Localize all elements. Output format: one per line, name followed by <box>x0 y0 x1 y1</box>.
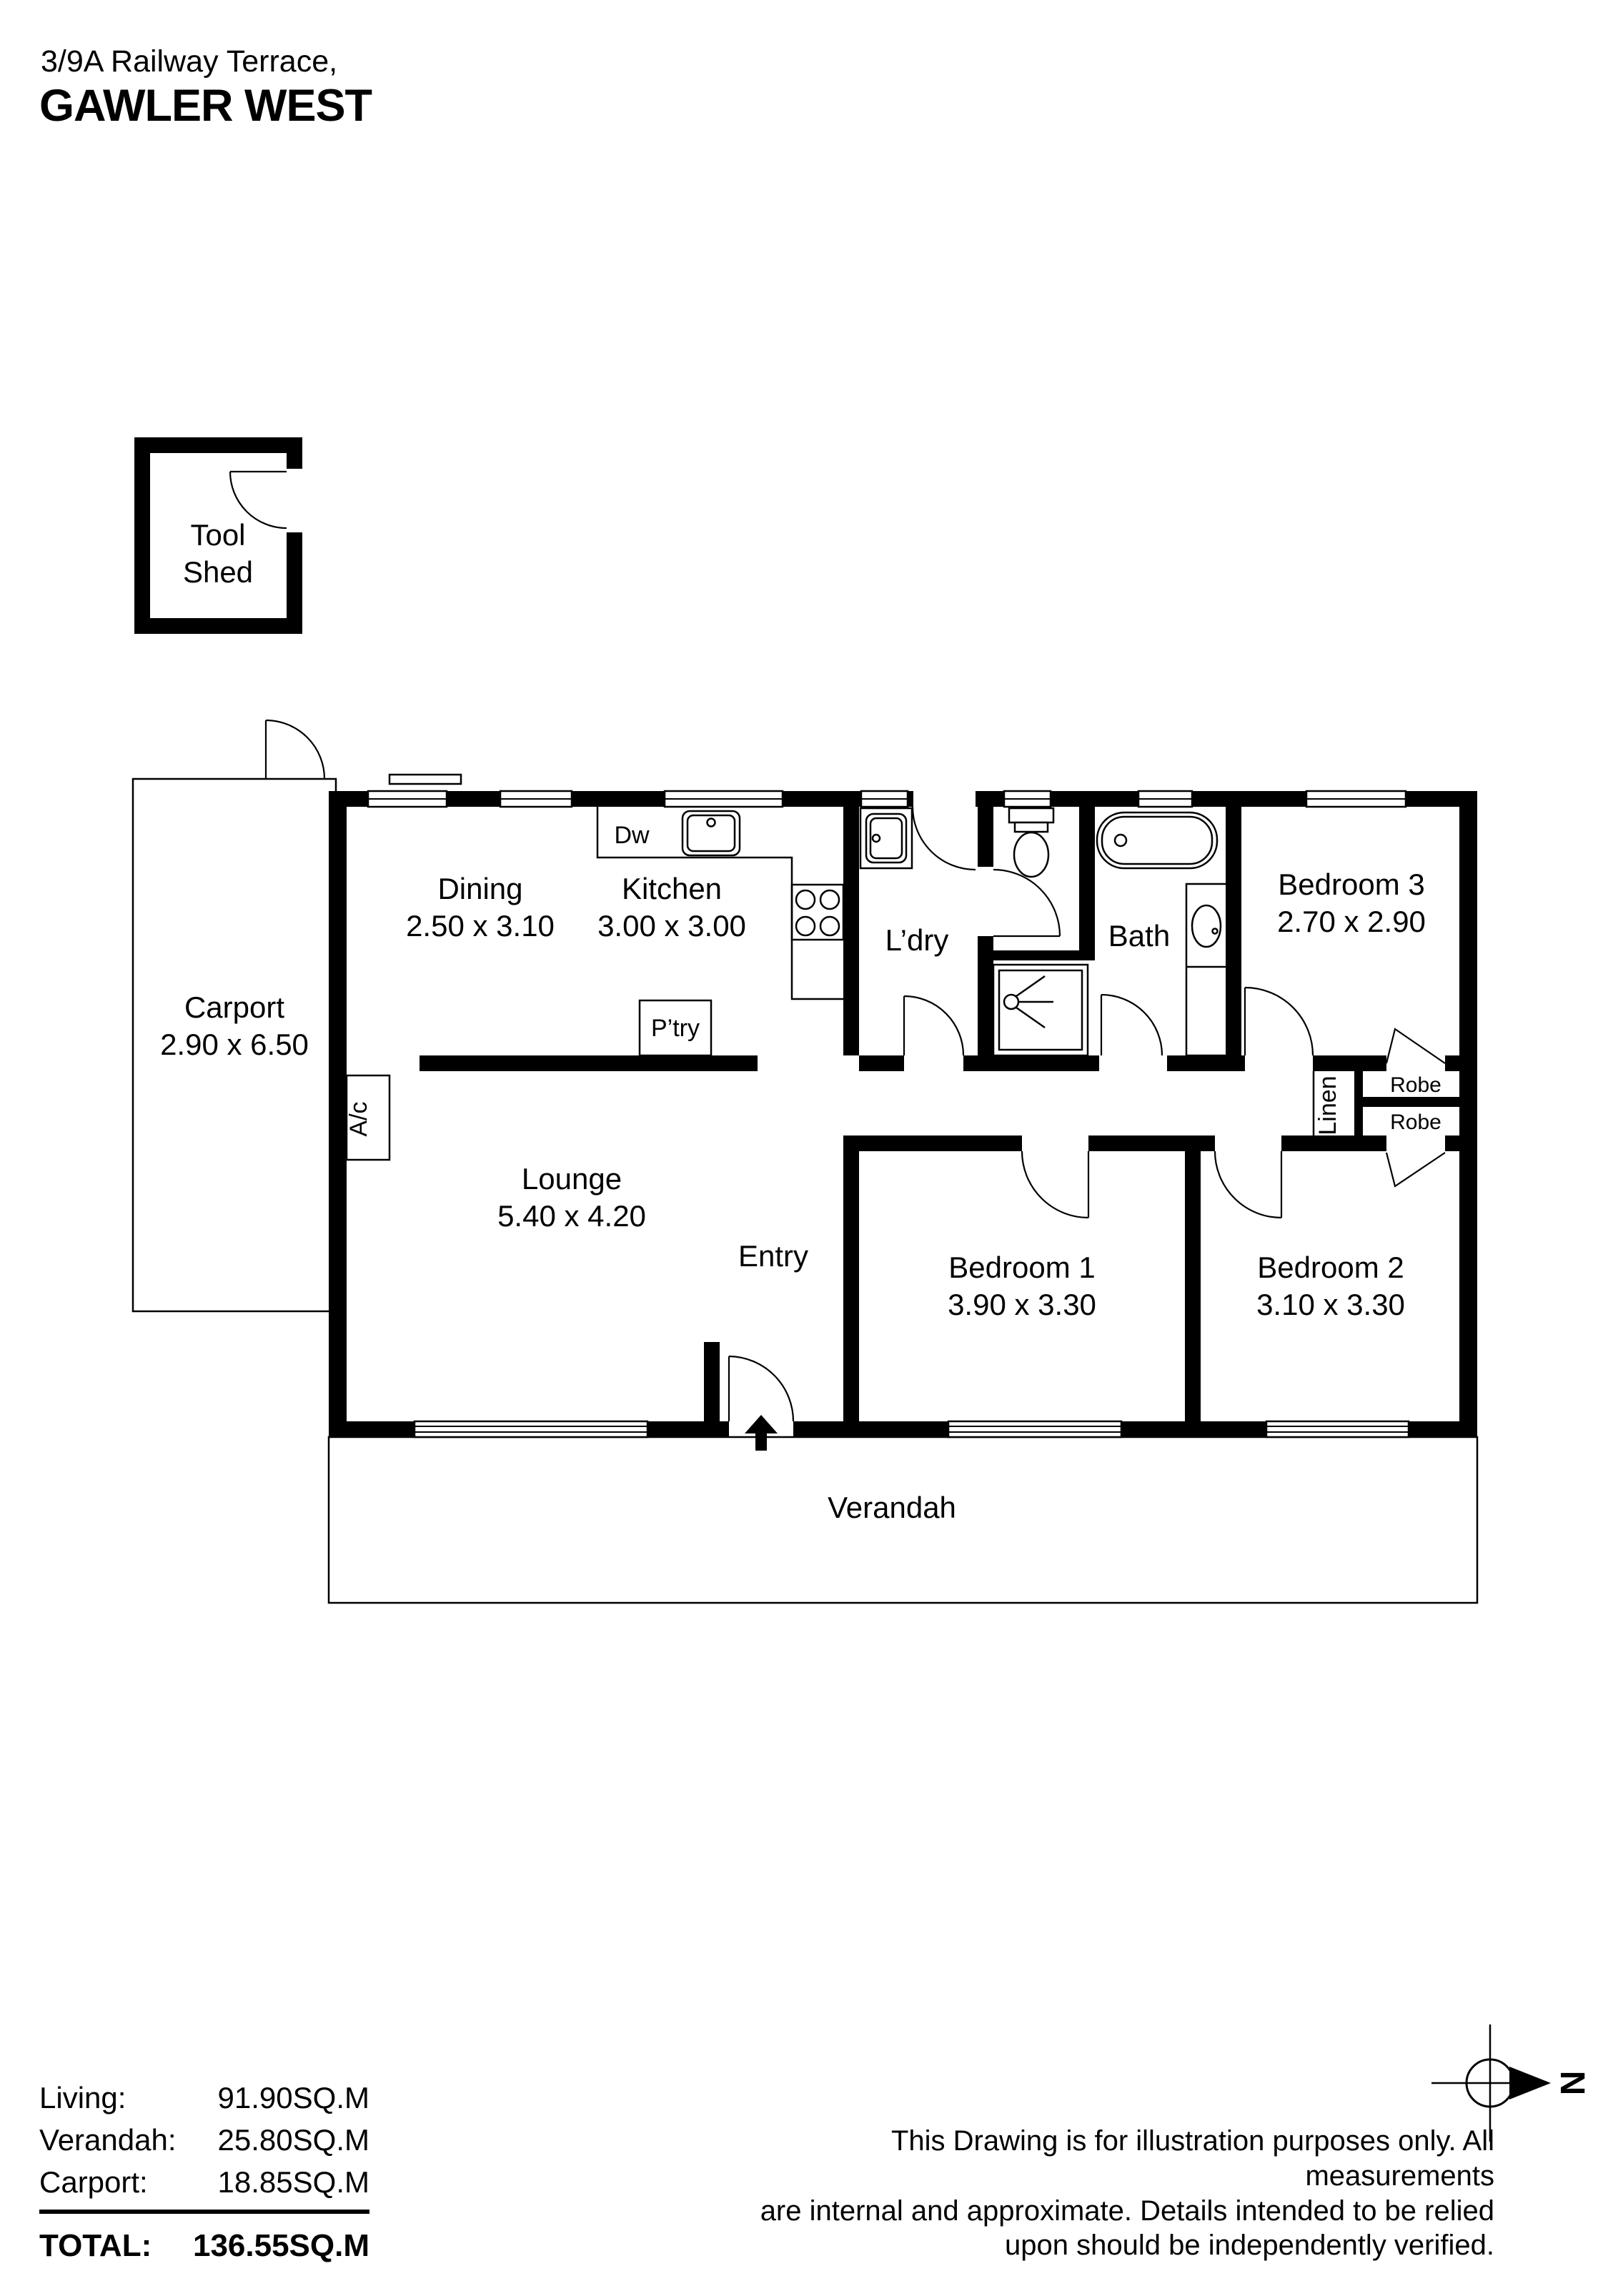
laundry-hall-door <box>904 996 963 1055</box>
bath-door <box>1101 995 1162 1055</box>
laundry-window <box>861 791 908 807</box>
entry-door <box>729 1356 793 1421</box>
robe-bottom-door <box>1386 1153 1445 1186</box>
area-row-total: TOTAL: 136.55SQ.M <box>39 2228 369 2264</box>
bedroom3-dims: 2.70 x 2.90 <box>1277 905 1426 938</box>
area-label: Living: <box>39 2081 126 2115</box>
verandah-label: Verandah <box>828 1491 956 1524</box>
bedroom2-window <box>1266 1421 1409 1437</box>
bedroom3-window <box>1306 791 1406 807</box>
carport-dims: 2.90 x 6.50 <box>160 1028 309 1061</box>
laundry-trough <box>860 808 912 868</box>
lounge-window <box>415 1421 647 1437</box>
robe-top-door <box>1386 1029 1445 1063</box>
bedroom3-label: Bedroom 3 <box>1278 868 1424 901</box>
linen-label: Linen <box>1314 1075 1341 1135</box>
bedroom1-dims: 3.90 x 3.30 <box>948 1288 1096 1321</box>
kitchen-dims: 3.00 x 3.00 <box>597 909 746 943</box>
bedroom2-label: Bedroom 2 <box>1257 1251 1404 1284</box>
floor-plan: Tool Shed Carport 2.90 x 6.50 Verandah <box>0 0 1603 2296</box>
bedroom2-door <box>1215 1151 1281 1218</box>
dining-window <box>368 775 461 807</box>
disclaimer-line: upon should be independently verified. <box>708 2228 1494 2263</box>
lounge-label: Lounge <box>522 1162 622 1196</box>
wc-window <box>1004 791 1051 807</box>
interior-walls <box>420 807 1461 1437</box>
wc-door <box>993 870 1060 936</box>
area-row-verandah: Verandah: 25.80SQ.M <box>39 2123 369 2157</box>
area-row-living: Living: 91.90SQ.M <box>39 2081 369 2115</box>
bedroom3-door <box>1245 988 1313 1055</box>
area-label: Carport: <box>39 2165 148 2200</box>
area-label: Verandah: <box>39 2123 177 2157</box>
total-label: TOTAL: <box>39 2228 152 2264</box>
shed-label-1: Tool <box>190 518 245 552</box>
bedroom1-door <box>1022 1151 1088 1218</box>
aircon-unit: A/c <box>345 1075 389 1160</box>
bath-window <box>1138 791 1192 807</box>
area-row-carport: Carport: 18.85SQ.M <box>39 2165 369 2200</box>
disclaimer-line: are internal and approximate. Details in… <box>708 2194 1494 2229</box>
laundry-label: L’dry <box>885 923 949 957</box>
area-value: 91.90SQ.M <box>218 2081 369 2115</box>
cooktop <box>792 885 843 940</box>
robe-top-label: Robe <box>1390 1073 1441 1097</box>
bathtub <box>1097 812 1217 868</box>
carport: Carport 2.90 x 6.50 <box>133 720 336 1311</box>
disclaimer-line: This Drawing is for illustration purpose… <box>708 2124 1494 2194</box>
lounge-dims: 5.40 x 4.20 <box>497 1199 646 1233</box>
verandah: Verandah <box>329 1437 1477 1603</box>
vanity <box>1186 884 1227 1055</box>
entry-arrow-icon <box>745 1415 778 1451</box>
toilet <box>1009 808 1053 877</box>
shed-label-2: Shed <box>183 555 253 589</box>
bedroom1-window <box>948 1421 1121 1437</box>
area-summary: Living: 91.90SQ.M Verandah: 25.80SQ.M Ca… <box>39 2081 369 2264</box>
shower <box>993 965 1088 1055</box>
bath-label: Bath <box>1108 919 1170 953</box>
area-value: 25.80SQ.M <box>218 2123 369 2157</box>
dining-dims: 2.50 x 3.10 <box>406 909 555 943</box>
kitchen-label: Kitchen <box>622 872 722 905</box>
entry-label: Entry <box>738 1239 808 1273</box>
carport-door <box>266 720 324 779</box>
bedroom2-dims: 3.10 x 3.30 <box>1256 1288 1405 1321</box>
robe-bottom-label: Robe <box>1390 1110 1441 1134</box>
carport-label: Carport <box>184 990 284 1024</box>
kitchen-sink-window <box>665 791 783 807</box>
area-value: 18.85SQ.M <box>218 2165 369 2200</box>
aircon-label: A/c <box>345 1101 372 1136</box>
dishwasher-label: Dw <box>614 822 650 849</box>
dining-label: Dining <box>437 872 522 905</box>
compass-north-label: N <box>1553 2071 1591 2096</box>
tool-shed: Tool Shed <box>134 437 305 634</box>
summary-divider <box>39 2210 369 2214</box>
laundry-exterior-door <box>913 807 976 870</box>
pantry-label: P’try <box>651 1015 700 1042</box>
kitchen-window-1 <box>500 791 572 807</box>
kitchen-sink <box>683 811 740 855</box>
total-value: 136.55SQ.M <box>193 2228 369 2264</box>
disclaimer: This Drawing is for illustration purpose… <box>708 2124 1494 2263</box>
windows <box>368 775 1409 1437</box>
bedroom1-label: Bedroom 1 <box>948 1251 1095 1284</box>
